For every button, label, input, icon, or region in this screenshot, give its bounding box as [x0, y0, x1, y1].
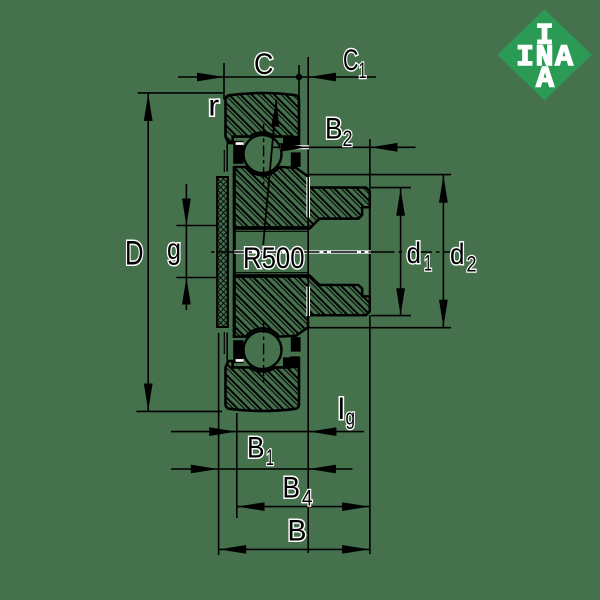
- svg-text:1: 1: [424, 251, 432, 276]
- svg-text:B: B: [283, 472, 301, 505]
- svg-text:R500: R500: [243, 242, 305, 275]
- svg-text:B: B: [288, 515, 307, 548]
- svg-text:C: C: [254, 48, 274, 81]
- svg-text:d: d: [450, 238, 465, 271]
- svg-text:B: B: [247, 432, 265, 465]
- svg-text:g: g: [167, 233, 181, 266]
- svg-text:C: C: [343, 44, 359, 77]
- svg-text:4: 4: [302, 486, 313, 511]
- svg-text:1: 1: [266, 445, 274, 470]
- svg-text:d: d: [407, 237, 422, 270]
- svg-text:1: 1: [359, 58, 367, 83]
- svg-text:2: 2: [467, 252, 477, 277]
- svg-text:g: g: [346, 405, 356, 430]
- svg-text:B: B: [325, 113, 343, 146]
- svg-text:A: A: [536, 63, 554, 97]
- svg-text:2: 2: [343, 126, 353, 151]
- svg-text:r: r: [208, 90, 219, 123]
- svg-text:D: D: [125, 235, 144, 273]
- svg-text:l: l: [338, 393, 345, 426]
